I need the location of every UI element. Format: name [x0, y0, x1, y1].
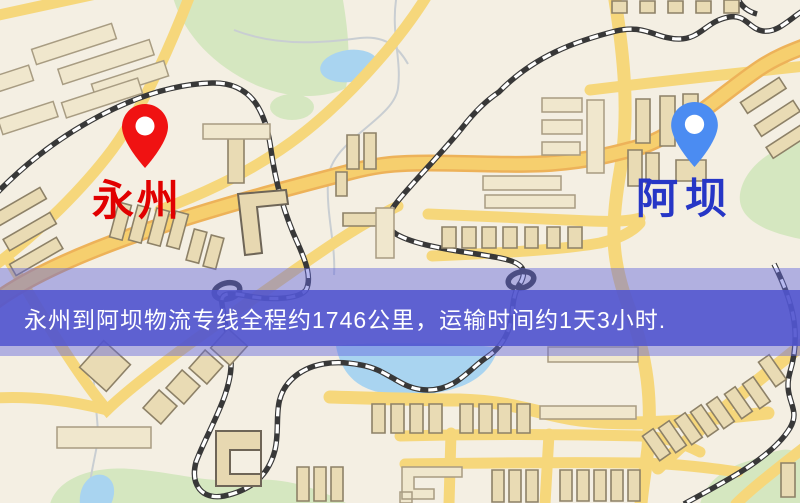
origin-pin-icon[interactable]	[121, 103, 169, 169]
route-info-banner: 永州到阿坝物流专线全程约1746公里，运输时间约1天3小时.	[0, 268, 800, 356]
route-info-text: 永州到阿坝物流专线全程约1746公里，运输时间约1天3小时.	[0, 301, 666, 335]
destination-city-label: 阿坝	[636, 179, 734, 221]
map-art	[0, 0, 800, 503]
origin-city-label: 永州	[92, 181, 182, 223]
screenshot-root: 永州 阿坝 永州到阿坝物流专线全程约1746公里，运输时间约1天3小时.	[0, 0, 800, 503]
pin-hole	[685, 115, 704, 134]
pin-hole	[136, 117, 155, 136]
destination-pin-icon[interactable]	[670, 101, 719, 168]
route-info-banner-band: 永州到阿坝物流专线全程约1746公里，运输时间约1天3小时.	[0, 290, 800, 346]
